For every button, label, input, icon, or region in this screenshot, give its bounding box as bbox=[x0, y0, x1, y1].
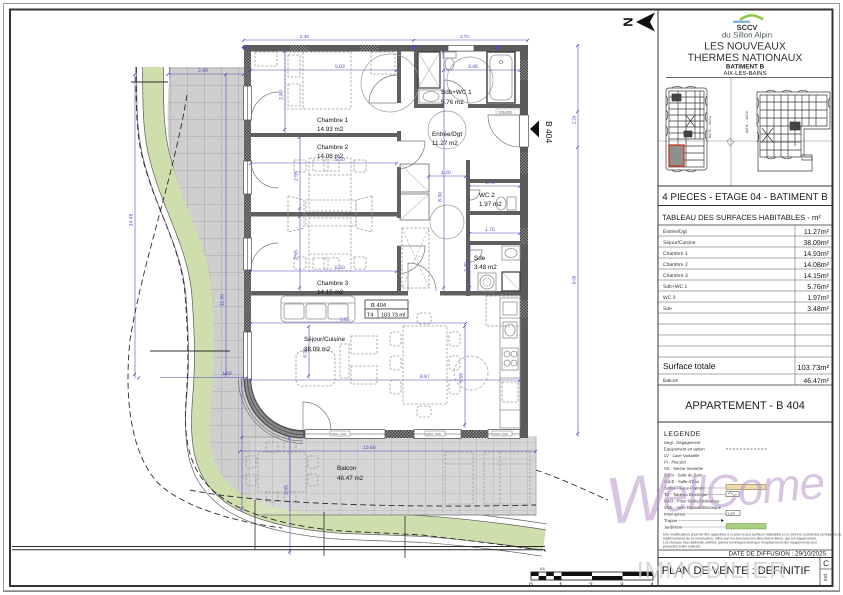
svg-text:Chambre 1: Chambre 1 bbox=[663, 251, 688, 257]
svg-text:2.49: 2.49 bbox=[464, 262, 470, 272]
svg-text:COUL. PAN: COUL. PAN bbox=[331, 432, 346, 436]
svg-text:présentés à titre indicatif.: présentés à titre indicatif. bbox=[663, 545, 701, 549]
svg-text:1.97m²: 1.97m² bbox=[807, 295, 829, 302]
svg-text:Sde: Sde bbox=[663, 306, 672, 312]
svg-text:Surface totale: Surface totale bbox=[663, 361, 716, 371]
svg-text:IMMOBILIER: IMMOBILIER bbox=[637, 557, 787, 583]
svg-text:Equipement en option: Equipement en option bbox=[664, 447, 705, 452]
svg-text:BAT.B ↔ BAT.A: BAT.B ↔ BAT.A bbox=[708, 115, 712, 138]
svg-text:5.03: 5.03 bbox=[335, 64, 345, 70]
svg-text:Chambre 1: Chambre 1 bbox=[317, 117, 349, 124]
svg-text:11.00: 11.00 bbox=[220, 294, 226, 306]
svg-text:Chambre 3: Chambre 3 bbox=[317, 280, 349, 287]
svg-text:Pl - Placard: Pl - Placard bbox=[664, 460, 686, 465]
svg-text:1.20: 1.20 bbox=[441, 170, 451, 176]
svg-text:Sdb+WC 1: Sdb+WC 1 bbox=[441, 89, 472, 96]
svg-text:1.75: 1.75 bbox=[485, 227, 495, 233]
svg-text:4 PIECES - ETAGE 04 - BATIMENT: 4 PIECES - ETAGE 04 - BATIMENT B bbox=[662, 192, 828, 203]
svg-text:3.48 m2: 3.48 m2 bbox=[474, 264, 497, 271]
svg-text:LEGENDE: LEGENDE bbox=[664, 431, 701, 438]
svg-text:Chambre 2: Chambre 2 bbox=[663, 262, 688, 268]
svg-text:5.50: 5.50 bbox=[335, 265, 345, 271]
svg-text:LES NOUVEAUX: LES NOUVEAUX bbox=[704, 41, 786, 53]
svg-text:3.48m²: 3.48m² bbox=[807, 306, 829, 313]
svg-text:Entrée/Dgt: Entrée/Dgt bbox=[663, 229, 688, 235]
svg-text:14.15m²: 14.15m² bbox=[803, 273, 829, 280]
svg-text:Séjour/Cuisine: Séjour/Cuisine bbox=[304, 336, 345, 343]
svg-text:5.76m²: 5.76m² bbox=[807, 284, 829, 291]
svg-text:14.08 m2: 14.08 m2 bbox=[317, 153, 344, 160]
svg-text:2.55: 2.55 bbox=[284, 485, 290, 495]
svg-text:103.73 ml: 103.73 ml bbox=[381, 313, 405, 319]
svg-text:120x205: 120x205 bbox=[498, 111, 512, 115]
svg-text:Chambre 2: Chambre 2 bbox=[317, 144, 349, 151]
svg-text:BAT.B ↔ BAT.E: BAT.B ↔ BAT.E bbox=[745, 111, 749, 133]
svg-text:1.75: 1.75 bbox=[485, 180, 495, 186]
svg-text:2.80: 2.80 bbox=[279, 90, 285, 100]
svg-text:2.55: 2.55 bbox=[294, 171, 300, 181]
svg-text:Sde: Sde bbox=[474, 255, 486, 262]
svg-text:3.70: 3.70 bbox=[460, 34, 469, 39]
svg-text:5.65: 5.65 bbox=[340, 317, 350, 323]
svg-text:AIX-LES-BAINS: AIX-LES-BAINS bbox=[723, 70, 766, 77]
svg-text:8.30: 8.30 bbox=[438, 192, 444, 202]
svg-text:Ind.: Ind. bbox=[823, 573, 829, 581]
svg-text:14.08m²: 14.08m² bbox=[803, 262, 829, 269]
svg-text:11.27m²: 11.27m² bbox=[804, 229, 830, 236]
svg-text:11.27 m2: 11.27 m2 bbox=[432, 140, 458, 147]
svg-text:14.15 m2: 14.15 m2 bbox=[317, 289, 344, 296]
svg-text:1.97 m2: 1.97 m2 bbox=[479, 201, 502, 208]
svg-text:38.09m²: 38.09m² bbox=[803, 240, 829, 247]
svg-text:2.20: 2.20 bbox=[572, 115, 577, 124]
svg-text:B 404: B 404 bbox=[544, 121, 554, 143]
svg-text:9.68: 9.68 bbox=[572, 275, 577, 284]
svg-text:14.93m²: 14.93m² bbox=[803, 251, 829, 258]
svg-text:1.00: 1.00 bbox=[222, 371, 232, 377]
svg-text:2.55: 2.55 bbox=[294, 250, 300, 260]
svg-text:Sdb+WC 1: Sdb+WC 1 bbox=[663, 284, 688, 290]
svg-text:8.87: 8.87 bbox=[420, 374, 430, 380]
svg-text:4.59: 4.59 bbox=[459, 373, 465, 383]
svg-text:Chambre 3: Chambre 3 bbox=[663, 273, 688, 279]
svg-text:COUL. PAN: COUL. PAN bbox=[493, 432, 508, 436]
svg-text:LV - Lave-Vaisselle: LV - Lave-Vaisselle bbox=[664, 453, 700, 458]
svg-text:Séjour/Cuisine: Séjour/Cuisine bbox=[663, 240, 696, 246]
svg-text:14.48: 14.48 bbox=[129, 214, 135, 227]
svg-text:103.73m²: 103.73m² bbox=[797, 363, 829, 372]
svg-text:Entrée/Dgt: Entrée/Dgt bbox=[432, 131, 462, 138]
svg-text:14.93 m2: 14.93 m2 bbox=[317, 126, 344, 133]
svg-text:BATIMENT B: BATIMENT B bbox=[726, 64, 765, 71]
svg-text:3.48: 3.48 bbox=[468, 64, 478, 70]
svg-text:T4: T4 bbox=[367, 313, 373, 319]
svg-text:5.76 m2: 5.76 m2 bbox=[441, 99, 464, 106]
svg-text:COUL. PAN: COUL. PAN bbox=[426, 432, 441, 436]
svg-text:46.47m²: 46.47m² bbox=[803, 378, 829, 385]
svg-text:0.5: 0.5 bbox=[540, 567, 545, 571]
svg-text:TABLEAU DES SURFACES HABITABLE: TABLEAU DES SURFACES HABITABLES - m² bbox=[662, 213, 821, 222]
svg-text:Degt : Dégagement: Degt : Dégagement bbox=[664, 440, 701, 445]
svg-text:2.49: 2.49 bbox=[198, 68, 208, 74]
svg-text:THERMES NATIONAUX: THERMES NATIONAUX bbox=[688, 52, 803, 64]
svg-text:C: C bbox=[823, 559, 829, 568]
svg-text:2.49: 2.49 bbox=[300, 34, 309, 39]
svg-text:WC 2: WC 2 bbox=[663, 295, 676, 301]
svg-text:N: N bbox=[620, 17, 635, 26]
svg-text:Balcon: Balcon bbox=[663, 378, 679, 384]
svg-text:WC 2: WC 2 bbox=[479, 192, 495, 199]
svg-text:38.09 m2: 38.09 m2 bbox=[304, 346, 331, 353]
svg-text:Balcon: Balcon bbox=[337, 465, 357, 472]
svg-text:B 404: B 404 bbox=[371, 302, 387, 309]
svg-text:46.47 m2: 46.47 m2 bbox=[337, 475, 364, 482]
svg-text:du Sillon Alpin: du Sillon Alpin bbox=[722, 31, 772, 40]
svg-text:10.60: 10.60 bbox=[363, 445, 376, 451]
svg-text:APPARTEMENT - B 404: APPARTEMENT - B 404 bbox=[685, 400, 805, 412]
